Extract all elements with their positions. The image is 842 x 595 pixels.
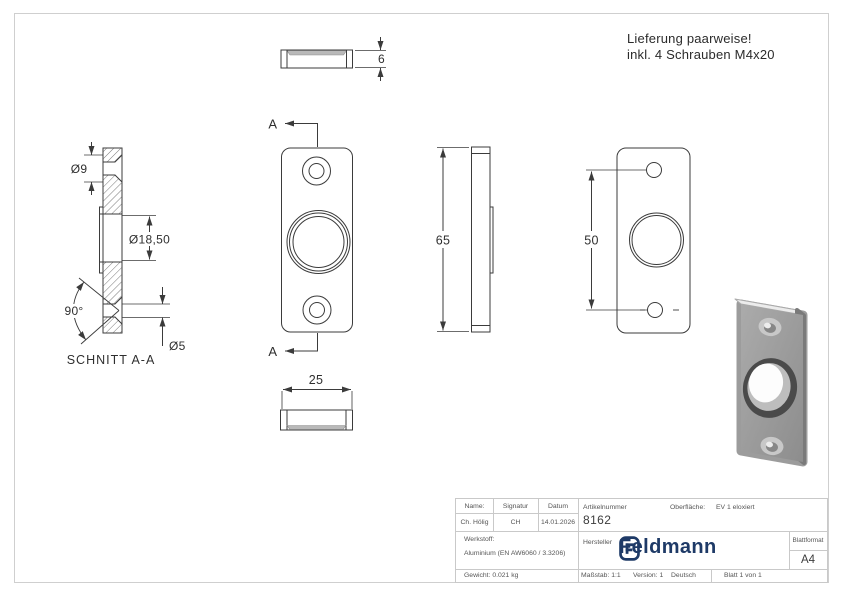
- manufacturer-logo: Feldmann: [619, 536, 717, 559]
- front-plate-outline: [282, 148, 353, 332]
- dim-hole-spacing: 50: [584, 234, 599, 248]
- version-value: Version: 1: [633, 569, 669, 582]
- dim-thickness: 6: [378, 52, 385, 66]
- bottom-view: [281, 410, 353, 430]
- feldmann-logo-icon: [619, 536, 640, 561]
- dim-bore-dia: Ø5: [169, 339, 186, 353]
- section-view: Ø9 Ø18,50 90° Ø5 SCHNITT A-A: [61, 142, 186, 367]
- section-title: SCHNITT A-A: [67, 353, 156, 367]
- name-value: Ch. Hölig: [456, 513, 493, 531]
- sheet-number: Blatt 1 von 1: [724, 569, 824, 582]
- sheet-format-value: A4: [789, 550, 827, 569]
- side-view: 65: [432, 147, 493, 332]
- side-view-boss: [490, 207, 493, 273]
- scale-value: Maßstab: 1:1: [581, 569, 631, 582]
- cut-mark-bottom: A: [268, 344, 277, 359]
- front-view: A A 25: [268, 117, 352, 410]
- language-value: Deutsch: [671, 569, 706, 582]
- section-boss: [100, 207, 104, 273]
- iso-view: [735, 299, 804, 463]
- dim-plate-width: 25: [309, 373, 324, 387]
- date-value: 14.01.2026: [538, 513, 578, 531]
- signature-value: CH: [493, 513, 538, 531]
- delivery-note: Lieferung paarweise! inkl. 4 Schrauben M…: [627, 31, 775, 62]
- surface-value: EV 1 eloxiert: [716, 502, 786, 512]
- material-label: Werkstoff:: [464, 534, 578, 544]
- dim-center-hole-dia: Ø18,50: [129, 233, 170, 247]
- drawing-sheet: 6 Ø9 Ø18,50: [0, 0, 842, 595]
- weight-value: Gewicht: 0.021 kg: [464, 569, 578, 582]
- section-center-hole: [103, 214, 122, 262]
- dim-countersink-angle: 90°: [64, 304, 83, 318]
- delivery-note-line2: inkl. 4 Schrauben M4x20: [627, 47, 775, 63]
- article-number: 8162: [583, 512, 663, 528]
- bottom-view-chamfer-face: [287, 426, 346, 430]
- dim-plate-height: 65: [436, 234, 451, 248]
- title-block: Name: Signatur Datum Ch. Hölig CH 14.01.…: [455, 498, 828, 583]
- sheet-format-label: Blattformat: [789, 531, 827, 550]
- name-label: Name:: [456, 499, 493, 513]
- cut-mark-top: A: [268, 117, 277, 132]
- top-view-chamfer-face: [287, 51, 347, 55]
- delivery-note-line1: Lieferung paarweise!: [627, 31, 775, 47]
- surface-label: Oberfläche:: [670, 502, 715, 512]
- rear-view: 50: [580, 148, 690, 333]
- side-view-outline: [472, 147, 491, 332]
- dim-countersink-dia: Ø9: [71, 162, 88, 176]
- rear-plate-outline: [617, 148, 690, 333]
- article-label: Artikelnummer: [583, 502, 663, 512]
- material-value: Aluminium (EN AW6060 / 3.3206): [464, 548, 584, 558]
- top-view: 6: [281, 37, 386, 81]
- signature-label: Signatur: [493, 499, 538, 513]
- date-label: Datum: [538, 499, 578, 513]
